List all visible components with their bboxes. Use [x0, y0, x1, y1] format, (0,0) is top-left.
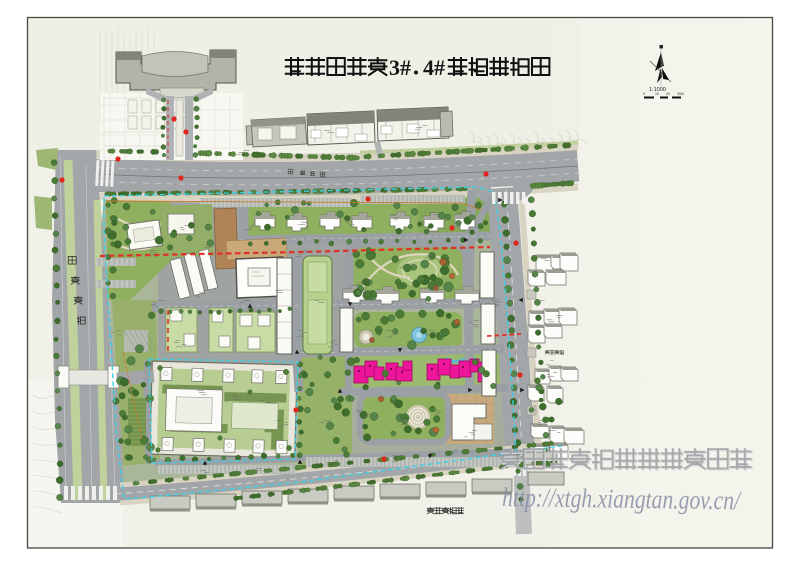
svg-text:20: 20 [666, 92, 670, 96]
svg-text:0: 0 [643, 92, 645, 96]
svg-text:3#: 3# [389, 55, 411, 80]
svg-text:http://xtgh.xiangtan.gov.cn/: http://xtgh.xiangtan.gov.cn/ [502, 482, 742, 515]
svg-text:10: 10 [655, 92, 659, 96]
svg-text:4#: 4# [423, 55, 445, 80]
svg-text:30M: 30M [677, 92, 684, 96]
